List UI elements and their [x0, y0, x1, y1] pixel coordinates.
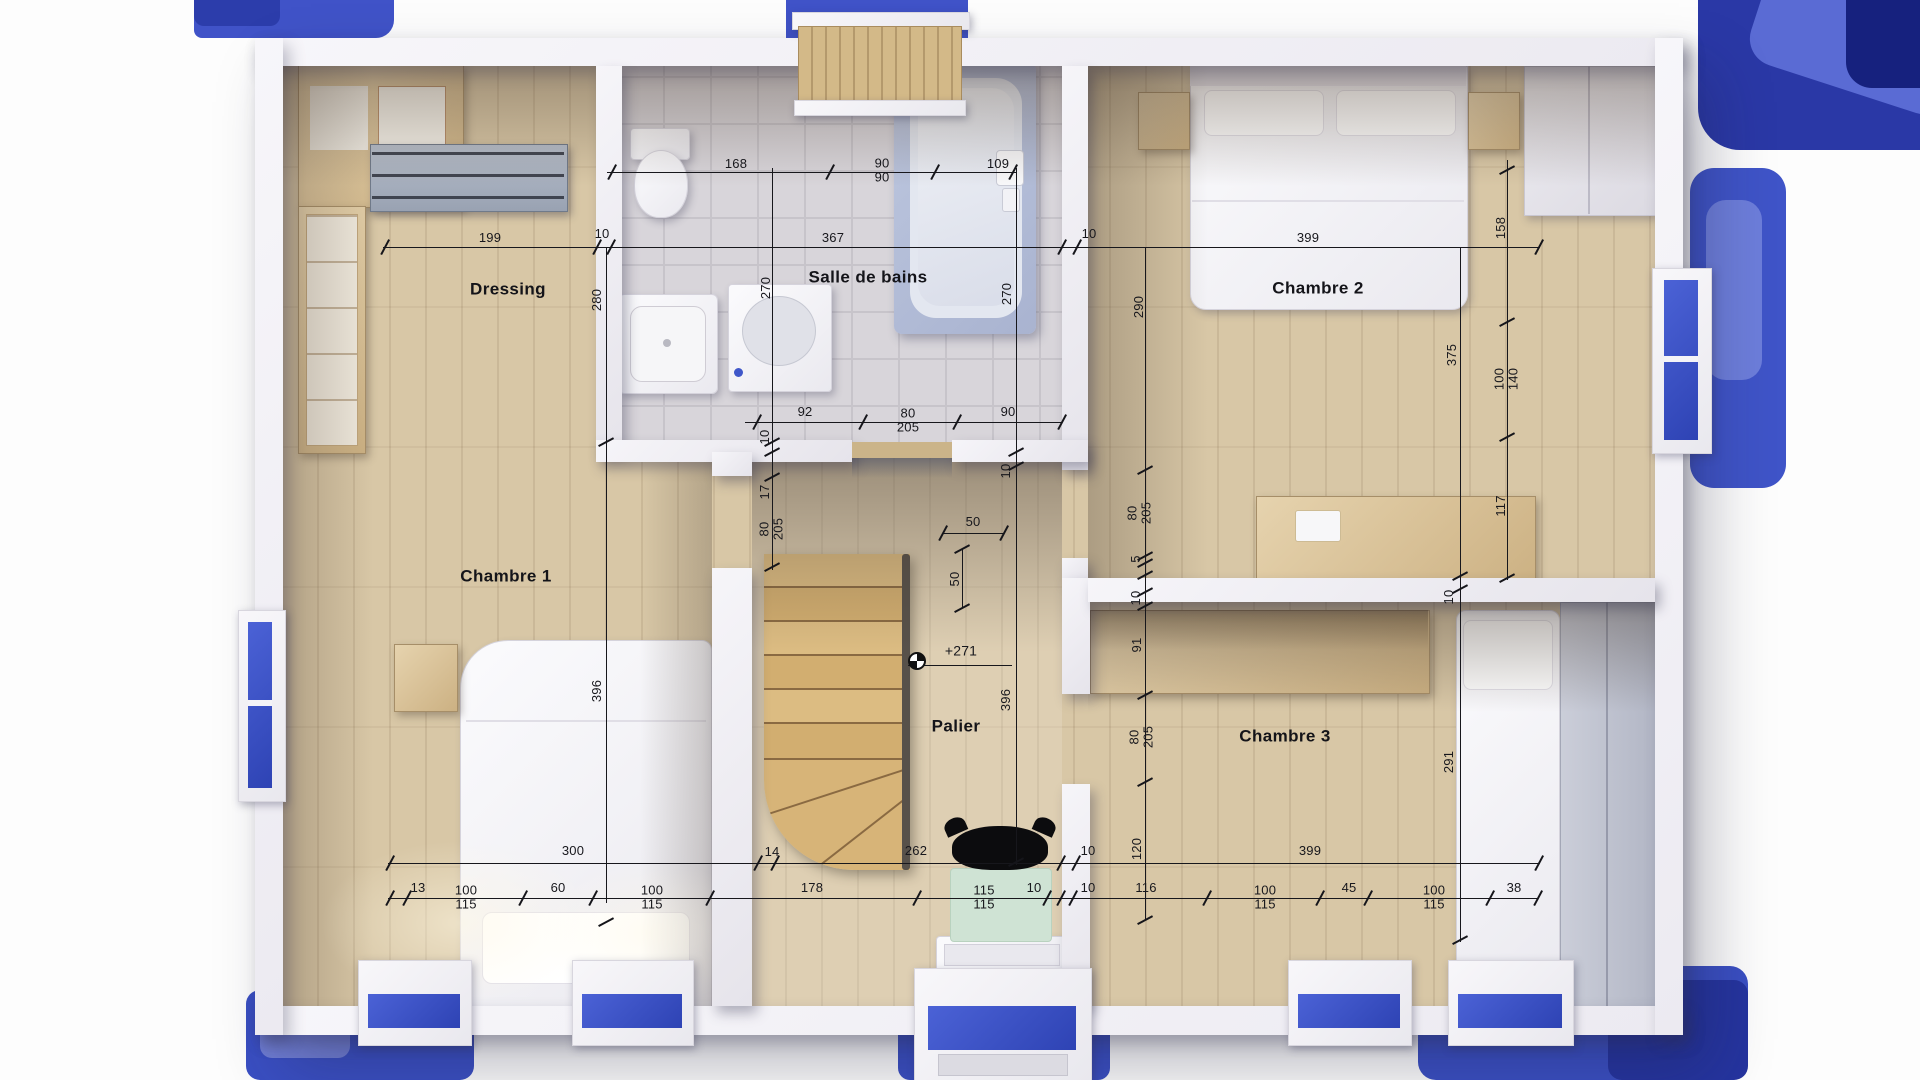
dressing-sliding-rail-2 — [372, 174, 564, 177]
bed2-pillow-right — [1336, 90, 1456, 136]
dim-label: 80 205 — [1125, 502, 1152, 524]
room-label-dressing: Dressing — [470, 281, 546, 300]
dim-label: 109 — [987, 157, 1009, 171]
window-right-mullion — [1664, 356, 1698, 362]
dim-label: 120 — [1130, 838, 1144, 860]
dim-label: 10 — [595, 227, 610, 241]
roof-patch-top-left-dark — [194, 0, 280, 26]
dim-label: 290 — [1132, 296, 1146, 318]
bathtub-faucet-handle — [1002, 188, 1020, 212]
dim-label: 178 — [801, 881, 823, 895]
dim-label: 45 — [1342, 881, 1357, 895]
dim-label: 115 115 — [973, 883, 994, 910]
window-left-mullion — [248, 700, 272, 706]
dim-label: 13 — [411, 881, 426, 895]
room-label-bedroom2: Chambre 2 — [1272, 280, 1363, 299]
stair-tread — [764, 656, 910, 690]
wall-dressing-bath — [596, 66, 622, 452]
dim-label: 17 — [758, 485, 772, 500]
dim-label: 100 140 — [1492, 368, 1519, 390]
bed3-pillow — [1463, 620, 1553, 690]
dim-label: 270 — [759, 277, 773, 299]
bathtub-basin — [918, 88, 1014, 306]
bed2-pillow-left — [1204, 90, 1324, 136]
dim-label: 100 115 — [1254, 883, 1276, 910]
nightstand-bedroom2-right — [1468, 92, 1520, 150]
staircase — [764, 554, 910, 870]
dim-label: 158 — [1494, 217, 1508, 239]
window-bottom-2-glass — [582, 994, 682, 1028]
dim-label: 399 — [1299, 844, 1321, 858]
wardrobe-bedroom2-door-line — [1588, 66, 1590, 214]
balcony-top-sill — [794, 100, 966, 116]
dim-label: 50 — [948, 572, 962, 587]
shower-drain — [663, 339, 671, 347]
wall-bath-bedroom2-lower — [1062, 558, 1088, 578]
dim-label: 396 — [590, 680, 604, 702]
dressing-sliding-rail-3 — [372, 196, 564, 199]
floor-plan-canvas[interactable]: Dressing Salle de bains Chambre 1 Chambr… — [0, 0, 1920, 1080]
dim-label: 100 115 — [1423, 883, 1445, 910]
landing-console-drawer-1 — [944, 944, 1060, 966]
stair-tread — [764, 690, 910, 724]
dim-label: 10 — [758, 430, 772, 445]
wall-bedroom1-landing-lower — [712, 568, 752, 1006]
dim-label: 80 205 — [757, 518, 784, 540]
window-bottom-1-glass — [368, 994, 460, 1028]
landing-mat — [950, 868, 1052, 942]
nightstand-bedroom1 — [394, 644, 458, 712]
window-bottom-3-glass — [1298, 994, 1400, 1028]
dim-label: 291 — [1442, 751, 1456, 773]
dim-label: 100 115 — [455, 883, 477, 910]
outer-wall-left — [255, 38, 283, 1035]
dim-label: 117 — [1494, 495, 1508, 516]
door-bottom-center-glass — [928, 1006, 1076, 1050]
roof-patch-top-right-dark — [1846, 0, 1920, 88]
wall-bedroom1-landing-upper — [712, 452, 752, 476]
dim-label: 262 — [905, 844, 927, 858]
wardrobe-bedroom3-door-line — [1606, 602, 1608, 1006]
room-label-bedroom1: Chambre 1 — [460, 568, 551, 587]
dim-label: 14 — [765, 845, 780, 859]
stair-tread — [764, 724, 910, 760]
bed1-blanket-line — [466, 720, 706, 722]
wall-bedroom2-bedroom3 — [1088, 578, 1655, 602]
sink-basin — [742, 296, 816, 366]
door-bottom-center-step — [938, 1054, 1068, 1076]
dim-label: 60 — [551, 881, 566, 895]
dim-label: 10 — [1081, 844, 1096, 858]
toilet-bowl — [634, 150, 688, 218]
dim-label: 80 205 — [1127, 726, 1154, 748]
roof-patch-right-light — [1706, 200, 1762, 380]
wall-bath-south-right — [952, 440, 1088, 462]
sink-tap — [734, 368, 743, 377]
room-label-bathroom: Salle de bains — [809, 269, 928, 288]
dressing-shelf-bay-1 — [310, 86, 368, 150]
dressing-sliding-rail-1 — [372, 152, 564, 155]
dim-label: 270 — [1000, 283, 1014, 305]
dim-label: 91 — [1130, 638, 1144, 653]
window-bottom-4-glass — [1458, 994, 1562, 1028]
dim-label: 38 — [1507, 881, 1522, 895]
dim-label level-text: +271 — [945, 644, 977, 659]
stair-tread — [764, 554, 910, 588]
room-label-landing: Palier — [932, 718, 981, 737]
wall-bath-bedroom2-upper — [1062, 66, 1088, 470]
wardrobe-bedroom3 — [1560, 602, 1657, 1008]
dim-label: 199 — [479, 231, 501, 245]
level-marker-icon — [908, 652, 926, 670]
dim-label: 300 — [562, 844, 584, 858]
stair-tread — [764, 588, 910, 622]
bed2-blanket-line — [1192, 200, 1464, 202]
dim-label: 375 — [1445, 344, 1459, 366]
dim-label: 5 — [1129, 555, 1143, 562]
dim-label: 92 — [798, 405, 813, 419]
outer-wall-right — [1655, 38, 1683, 1035]
dim-label: 100 115 — [641, 883, 663, 910]
dim-label: 10 — [1082, 227, 1097, 241]
dim-label: 90 — [1001, 405, 1016, 419]
outer-wall-top — [255, 38, 1683, 66]
dim-label: 50 — [966, 515, 981, 529]
stair-tread — [764, 622, 910, 656]
balcony-top-deck — [798, 26, 962, 104]
wardrobe-bedroom2 — [1524, 66, 1656, 216]
dim-label: 90 90 — [875, 156, 890, 183]
dim-label: 399 — [1297, 231, 1319, 245]
pendant-lamp-icon — [952, 826, 1048, 870]
bath-door-threshold — [852, 442, 952, 458]
room-label-bedroom3: Chambre 3 — [1239, 728, 1330, 747]
dim-label: 10 — [1442, 590, 1456, 605]
dresser-bedroom2-decor — [1295, 510, 1341, 542]
nightstand-bedroom2-left — [1138, 92, 1190, 150]
dim-label: 396 — [999, 689, 1013, 711]
dressing-shelf-bay-2 — [378, 86, 446, 152]
dim-label: 367 — [822, 231, 844, 245]
wall-landing-bedroom3-upper — [1062, 578, 1090, 694]
dim-label: 116 — [1135, 881, 1156, 895]
bath-door-opening-shadow — [852, 456, 952, 478]
dressing-shelf-column-interior — [306, 214, 358, 446]
dim-label: 80 205 — [897, 406, 919, 433]
dim-label: 168 — [725, 157, 747, 171]
bed2-headboard — [1190, 66, 1466, 86]
dim-label: 10 — [1129, 591, 1143, 606]
stair-railing — [902, 554, 910, 870]
dim-label: 280 — [590, 289, 604, 311]
dim-label: 10 — [1081, 881, 1096, 895]
dim-label: 10 — [999, 464, 1013, 479]
dim-label: 10 — [1027, 881, 1042, 895]
